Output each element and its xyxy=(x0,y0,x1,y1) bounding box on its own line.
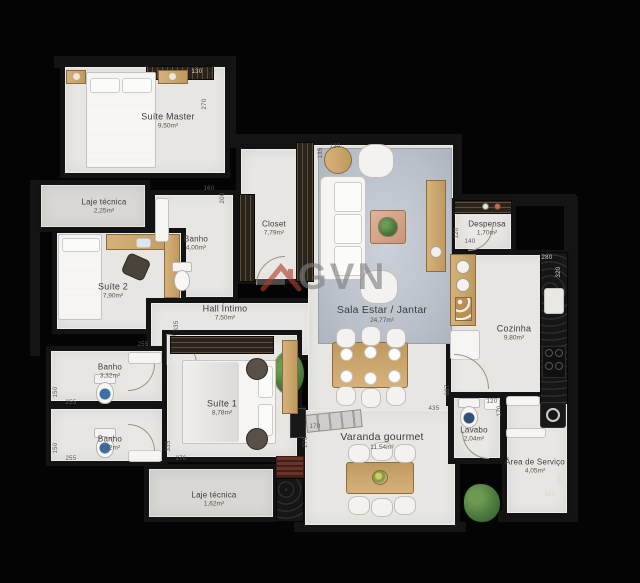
armchair xyxy=(358,144,394,178)
lamp-icon xyxy=(168,72,177,81)
grill xyxy=(276,456,304,478)
gourmet-chair xyxy=(371,498,393,517)
dish-icon xyxy=(456,278,470,292)
dimension-label: 140 xyxy=(465,239,476,245)
dining-chair xyxy=(336,386,356,406)
dimension-label: 320 xyxy=(556,267,562,278)
room-label-lavabo: Lavabo2,04m² xyxy=(460,425,487,442)
burner-icon xyxy=(545,349,553,357)
sofa-cushion xyxy=(334,182,362,212)
plate xyxy=(364,372,377,385)
dining-chair xyxy=(336,328,356,348)
dimension-label: 270 xyxy=(176,456,187,462)
dimension-label: 270 xyxy=(202,99,208,110)
dimension-label: 270 xyxy=(303,437,309,448)
dimension-label: 120 xyxy=(454,228,460,239)
dimension-label: 255 xyxy=(138,342,149,348)
dimension-label: 170 xyxy=(310,424,321,430)
fruit-bowl-icon xyxy=(372,470,388,485)
closet-wardrobe xyxy=(239,194,255,282)
plate xyxy=(364,346,377,359)
dimension-label: 687 xyxy=(445,385,451,396)
room-label-laje-tecnica-bottom: Laje técnica1,62m² xyxy=(191,490,236,507)
dimension-label: 335 xyxy=(174,321,180,332)
jar-icon xyxy=(482,203,489,210)
room-label-hall-intimo: Hall Íntimo7,50m² xyxy=(203,304,248,323)
toilet xyxy=(174,270,190,291)
dimension-label: 255 xyxy=(66,456,77,462)
room-label-suite-master: Suíte Master9,50m² xyxy=(141,112,194,131)
pillow xyxy=(62,238,100,252)
plant-icon xyxy=(379,218,397,236)
dimension-label: 435 xyxy=(429,406,440,412)
dimension-label: 280 xyxy=(542,255,553,261)
dining-chair xyxy=(361,326,381,346)
sideboard xyxy=(426,180,446,272)
gourmet-chair xyxy=(394,496,416,515)
plate xyxy=(388,348,401,361)
jar-icon xyxy=(494,203,501,210)
kitchen-sink xyxy=(544,288,564,314)
room-label-cozinha: Cozinha9,80m² xyxy=(497,324,531,343)
dimension-label: 255 xyxy=(66,400,77,406)
bathroom-vanity xyxy=(155,198,169,242)
dish-icon xyxy=(456,260,470,274)
laundry-shelf xyxy=(506,428,546,438)
room-label-suite-2: Suíte 27,90m² xyxy=(98,282,128,301)
washer-door-icon xyxy=(546,408,560,422)
room-label-laje-tecnica-top: Laje técnica2,25m² xyxy=(81,197,126,214)
watermark-text: GVN xyxy=(298,256,387,298)
wardrobe xyxy=(170,336,274,354)
dimension-label: 150 xyxy=(53,443,59,454)
room-label-closet: Closet7,79m² xyxy=(262,219,286,236)
dimension-label: 267 xyxy=(558,473,564,484)
lamp-icon xyxy=(72,72,81,81)
dimension-label: 135 xyxy=(318,148,324,159)
grill-counter xyxy=(276,478,304,522)
sofa-cushion xyxy=(334,214,362,244)
room-label-banho-2: Banho3,32m² xyxy=(98,362,122,379)
room-label-banho-suite-master: Banho4,00m² xyxy=(184,234,208,251)
room-label-sala: Sala Estar / Jantar24,77m² xyxy=(337,304,427,324)
plate xyxy=(388,370,401,383)
side-table-round xyxy=(324,146,352,174)
kitchen-counter-black xyxy=(540,252,568,404)
dimension-label: 200 xyxy=(220,193,226,204)
pouf xyxy=(246,358,268,380)
dimension-label: 120 xyxy=(330,144,341,150)
toilet xyxy=(96,382,114,404)
room-label-varanda: Varanda gourmet11,54m² xyxy=(340,431,423,451)
glass-rack xyxy=(455,297,472,321)
dimension-label: 170 xyxy=(497,406,503,417)
shelf xyxy=(282,340,298,414)
dining-chair xyxy=(386,328,406,348)
pouf xyxy=(246,428,268,450)
room-label-despensa: Despensa1,70m² xyxy=(468,219,506,236)
bathroom-vanity xyxy=(128,450,162,462)
room-label-area-servico: Área de Serviço4,05m² xyxy=(505,457,565,474)
pillow xyxy=(122,78,152,93)
watermark: GVN xyxy=(258,256,387,298)
blanket xyxy=(59,264,101,318)
dining-chair xyxy=(361,388,381,408)
dimension-label: 335 xyxy=(166,441,172,452)
laptop-icon xyxy=(136,238,151,248)
plate xyxy=(340,348,353,361)
laundry-shelf xyxy=(506,396,540,406)
dimension-label: 160 xyxy=(204,186,215,192)
plate xyxy=(340,370,353,383)
burner-icon xyxy=(555,362,563,370)
dining-chair xyxy=(386,386,406,406)
room-label-banho-3: Banho3,32m² xyxy=(98,434,122,451)
bathroom-vanity xyxy=(128,352,162,364)
plant-icon xyxy=(464,484,500,522)
dimension-label: 120 xyxy=(487,399,498,405)
gourmet-chair xyxy=(348,496,370,515)
dimension-label: 150 xyxy=(53,387,59,398)
burner-icon xyxy=(545,362,553,370)
burner-icon xyxy=(555,349,563,357)
pillow xyxy=(90,78,120,93)
table-lamp-icon xyxy=(430,246,442,258)
floor-plan: Suíte Master9,50m² Laje técnica2,25m² Ba… xyxy=(0,0,640,583)
dimension-label: 160 xyxy=(545,492,556,498)
room-label-suite-1: Suíte 18,78m² xyxy=(207,399,237,418)
dimension-label: 130 xyxy=(192,69,203,75)
